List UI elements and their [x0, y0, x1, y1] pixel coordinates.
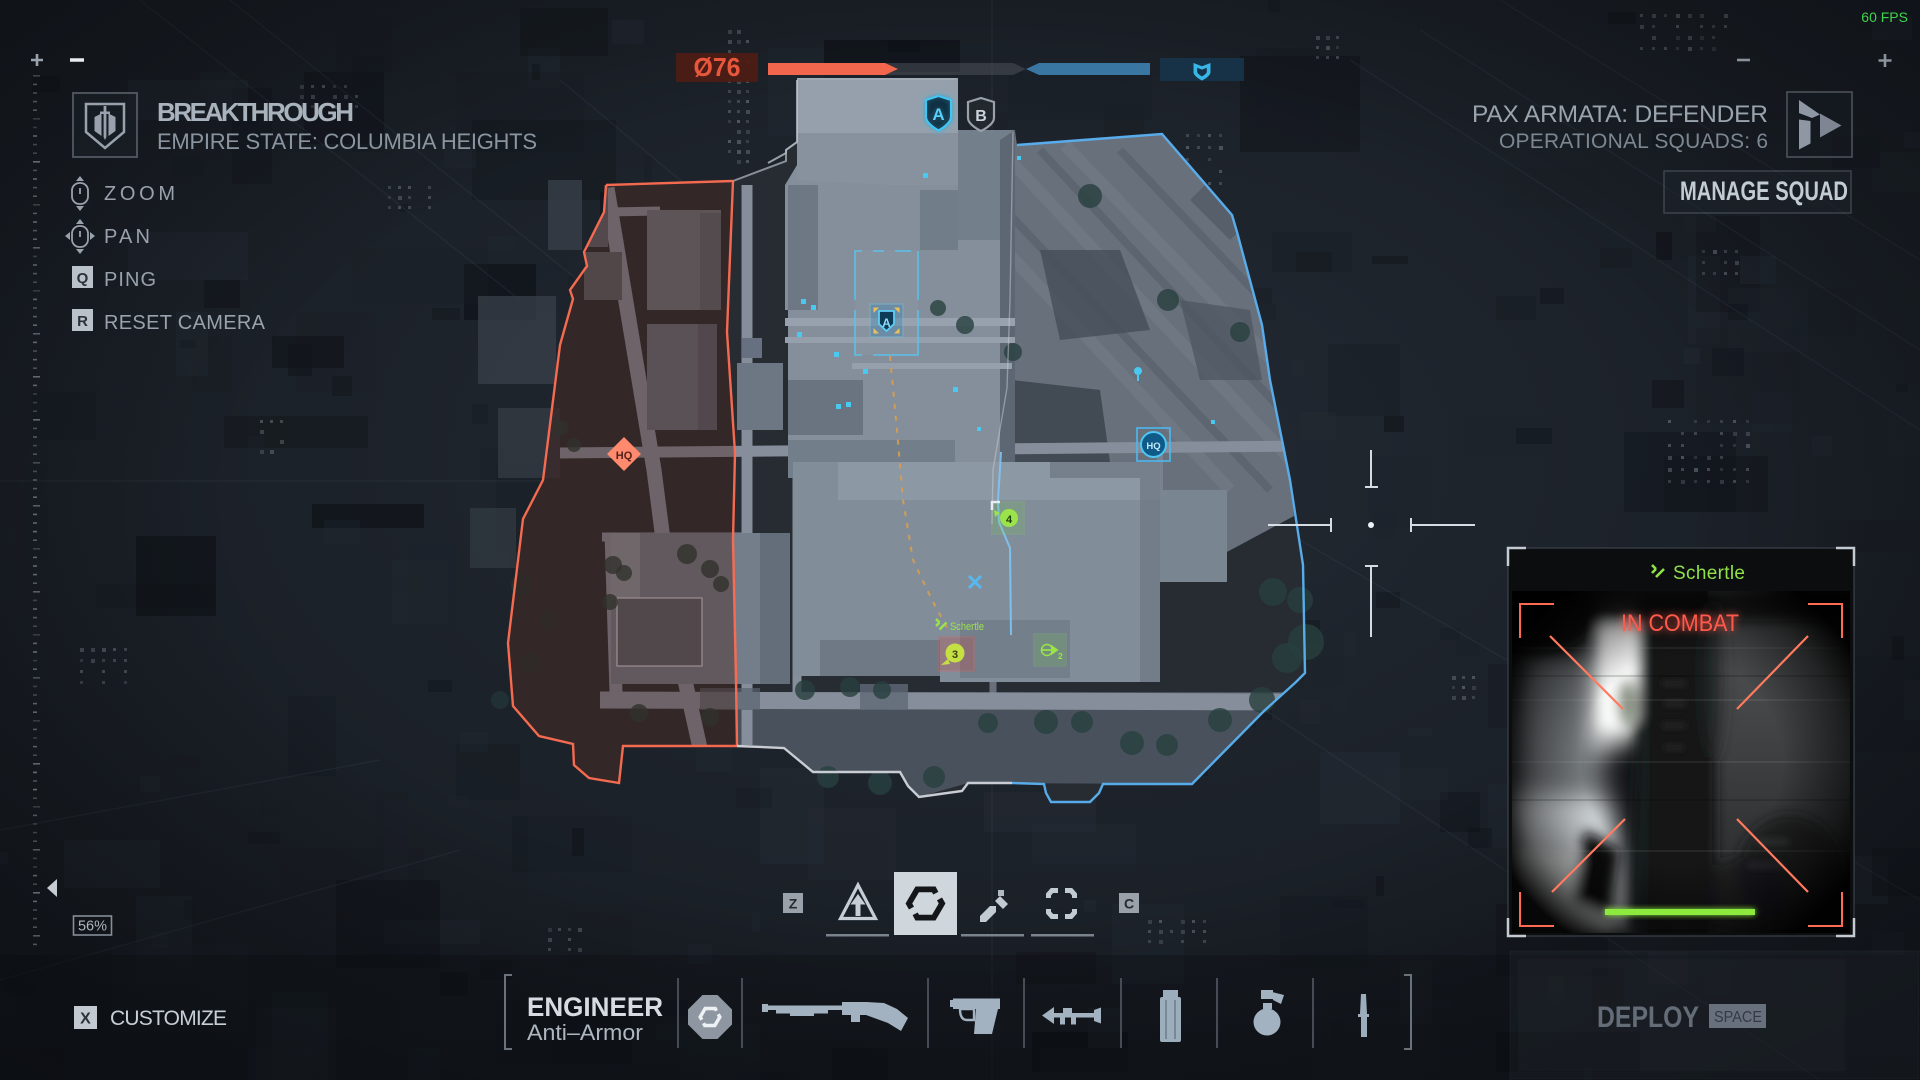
svg-text:B: B	[975, 108, 987, 125]
svg-text:2: 2	[1058, 651, 1063, 661]
svg-text:A: A	[882, 316, 891, 330]
svg-text:PAX ARMATA: DEFENDER: PAX ARMATA: DEFENDER	[1472, 101, 1768, 128]
svg-text:A: A	[932, 105, 944, 124]
svg-text:Schertle: Schertle	[950, 621, 984, 633]
svg-text:RESET CAMERA: RESET CAMERA	[104, 312, 266, 334]
svg-text:MANAGE SQUAD: MANAGE SQUAD	[1680, 176, 1848, 206]
svg-text:Q: Q	[77, 270, 89, 287]
svg-text:C: C	[1124, 896, 1134, 912]
svg-text:OPERATIONAL SQUADS: 6: OPERATIONAL SQUADS: 6	[1499, 130, 1768, 153]
svg-text:Ø76: Ø76	[694, 52, 741, 82]
svg-text:R: R	[77, 313, 88, 330]
svg-text:CUSTOMIZE: CUSTOMIZE	[110, 1007, 227, 1030]
svg-text:IN COMBAT: IN COMBAT	[1621, 610, 1739, 637]
svg-text:BREAKTHROUGH: BREAKTHROUGH	[157, 97, 354, 127]
svg-text:EMPIRE STATE: COLUMBIA HEIGHTS: EMPIRE STATE: COLUMBIA HEIGHTS	[157, 129, 537, 154]
svg-text:56%: 56%	[78, 919, 107, 935]
svg-text:Schertle: Schertle	[1673, 563, 1745, 584]
svg-text:DEPLOY: DEPLOY	[1597, 1001, 1699, 1034]
svg-text:SPACE: SPACE	[1714, 1009, 1762, 1026]
svg-text:PING: PING	[104, 269, 156, 291]
svg-text:PAN: PAN	[104, 226, 150, 248]
svg-text:Anti–Armor: Anti–Armor	[527, 1020, 643, 1045]
svg-text:X: X	[80, 1011, 91, 1028]
svg-text:60 FPS: 60 FPS	[1861, 9, 1908, 25]
svg-text:3: 3	[952, 649, 958, 661]
svg-text:ZOOM: ZOOM	[104, 183, 175, 205]
svg-text:4: 4	[1006, 514, 1013, 526]
svg-text:HQ: HQ	[1146, 441, 1160, 452]
svg-text:HQ: HQ	[616, 450, 633, 462]
svg-text:Z: Z	[789, 896, 798, 912]
svg-text:ENGINEER: ENGINEER	[527, 992, 663, 1022]
